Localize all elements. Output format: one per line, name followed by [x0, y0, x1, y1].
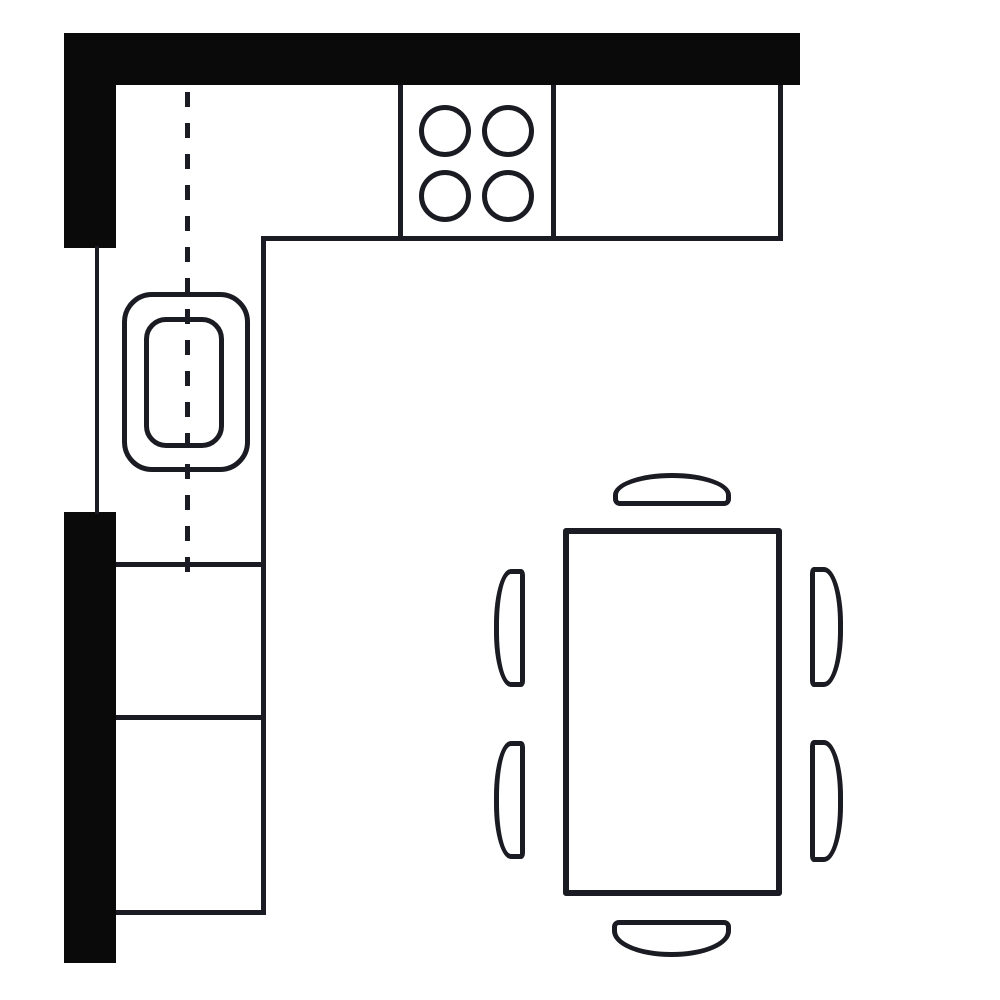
sink-center-dashed-line [185, 92, 190, 574]
chair-south [612, 920, 731, 957]
burner-top-left [419, 105, 471, 157]
burner-bottom-right [482, 170, 534, 222]
wall-top [64, 33, 800, 85]
chair-east-lower [810, 740, 843, 862]
dining-table [563, 528, 782, 896]
counter-top-right-edge [778, 85, 783, 241]
sink-basin [144, 317, 224, 448]
chair-north [613, 473, 731, 506]
chair-east-upper [810, 567, 843, 687]
counter-left-bottom-edge [116, 910, 266, 915]
counter-left-right-edge [261, 236, 266, 915]
cooktop-right-edge [551, 85, 556, 241]
cabinet-divider-upper [116, 562, 264, 567]
chair-west-upper [494, 569, 525, 687]
burner-bottom-left [419, 170, 471, 222]
counter-top-bottom-edge [261, 236, 783, 241]
cabinet-divider-lower [116, 715, 264, 720]
wall-left-upper [64, 33, 116, 248]
wall-left-lower [64, 512, 116, 963]
cooktop-left-edge [398, 85, 403, 241]
kitchen-floor-plan [0, 0, 1000, 1000]
window-wall-line [95, 246, 99, 514]
burner-top-right [482, 105, 534, 157]
chair-west-lower [494, 741, 525, 859]
